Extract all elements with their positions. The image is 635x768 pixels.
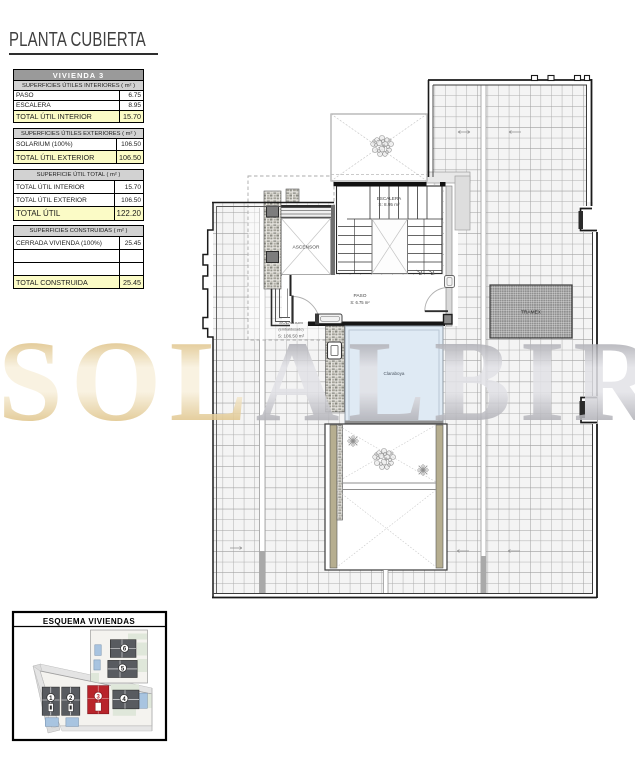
- svg-text:ESQUEMA VIVIENDAS: ESQUEMA VIVIENDAS: [43, 617, 136, 626]
